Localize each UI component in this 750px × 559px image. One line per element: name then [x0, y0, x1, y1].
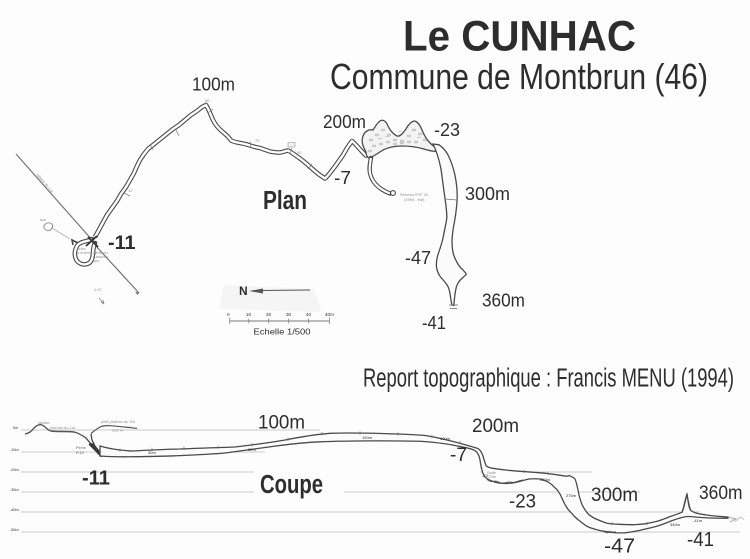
svg-text:100m: 100m	[192, 73, 235, 94]
svg-text:90: 90	[297, 150, 302, 155]
svg-text:-50m: -50m	[10, 528, 19, 532]
svg-text:Coupe: Coupe	[260, 471, 323, 499]
svg-text:0m: 0m	[13, 426, 18, 430]
svg-text:Report topographique : Francis: Report topographique : Francis MENU (199…	[363, 365, 734, 393]
svg-text:30m: 30m	[148, 450, 156, 455]
svg-text:-47: -47	[604, 536, 635, 558]
svg-text:190m: 190m	[440, 436, 451, 441]
svg-text:30: 30	[286, 312, 292, 317]
svg-text:-7: -7	[334, 167, 351, 188]
svg-text:siphon: siphon	[604, 529, 616, 534]
svg-text:-41m: -41m	[693, 518, 703, 523]
svg-text:12: 12	[128, 188, 133, 193]
svg-text:50: 50	[205, 98, 210, 103]
svg-text:d entree: d entree	[77, 250, 92, 255]
svg-text:310 m: 310 m	[112, 428, 124, 433]
svg-text:100m: 100m	[258, 412, 305, 434]
svg-text:chemin du Lot: chemin du Lot	[50, 425, 76, 430]
svg-text:sce: sce	[40, 217, 47, 222]
svg-text:-40m: -40m	[10, 508, 19, 512]
svg-text:270m: 270m	[566, 493, 577, 498]
svg-text:360m: 360m	[482, 290, 525, 311]
svg-text:sec: sec	[93, 258, 99, 263]
svg-text:10: 10	[246, 312, 252, 317]
svg-text:0: 0	[227, 312, 230, 317]
svg-text:80m: 80m	[248, 447, 256, 452]
svg-text:250m: 250m	[540, 477, 551, 482]
svg-text:-23m: -23m	[487, 474, 497, 479]
svg-text:-11: -11	[82, 468, 110, 490]
svg-text:N: N	[239, 284, 248, 298]
svg-text:Plan: Plan	[263, 187, 307, 215]
svg-text:-11: -11	[108, 233, 136, 254]
svg-text:petit plateau du Sol: petit plateau du Sol	[101, 419, 135, 424]
svg-text:Echelle 1/500: Echelle 1/500	[254, 327, 311, 337]
svg-text:-23: -23	[434, 119, 460, 140]
svg-text:-41: -41	[422, 312, 446, 333]
svg-text:Commune de Montbrun (46): Commune de Montbrun (46)	[330, 56, 708, 97]
svg-text:-23: -23	[482, 473, 489, 478]
svg-text:-23: -23	[509, 492, 536, 513]
svg-text:-20m: -20m	[10, 468, 19, 472]
svg-text:-10m: -10m	[10, 448, 19, 452]
svg-text:-47: -47	[405, 247, 431, 268]
svg-text:P.10: P.10	[76, 450, 84, 455]
svg-text:200m: 200m	[472, 415, 519, 437]
svg-text:-7: -7	[450, 445, 467, 466]
svg-text:360m: 360m	[699, 482, 743, 504]
svg-text:(1994 - est): (1994 - est)	[404, 197, 425, 202]
svg-text:Le CUNHAC: Le CUNHAC	[403, 13, 636, 61]
svg-text:-41: -41	[687, 529, 714, 551]
svg-text:300m: 300m	[591, 484, 638, 506]
svg-text:40m: 40m	[325, 312, 334, 317]
svg-text:340m: 340m	[670, 522, 681, 527]
svg-text:1.07: 1.07	[94, 287, 103, 292]
svg-text:40: 40	[306, 312, 312, 317]
svg-text:-30m: -30m	[10, 488, 19, 492]
svg-text:20: 20	[266, 312, 272, 317]
svg-text:falaise: falaise	[38, 420, 50, 425]
svg-text:150m: 150m	[362, 435, 373, 440]
svg-text:70: 70	[255, 138, 260, 143]
svg-text:200m: 200m	[323, 111, 366, 132]
svg-text:300m: 300m	[465, 183, 510, 204]
